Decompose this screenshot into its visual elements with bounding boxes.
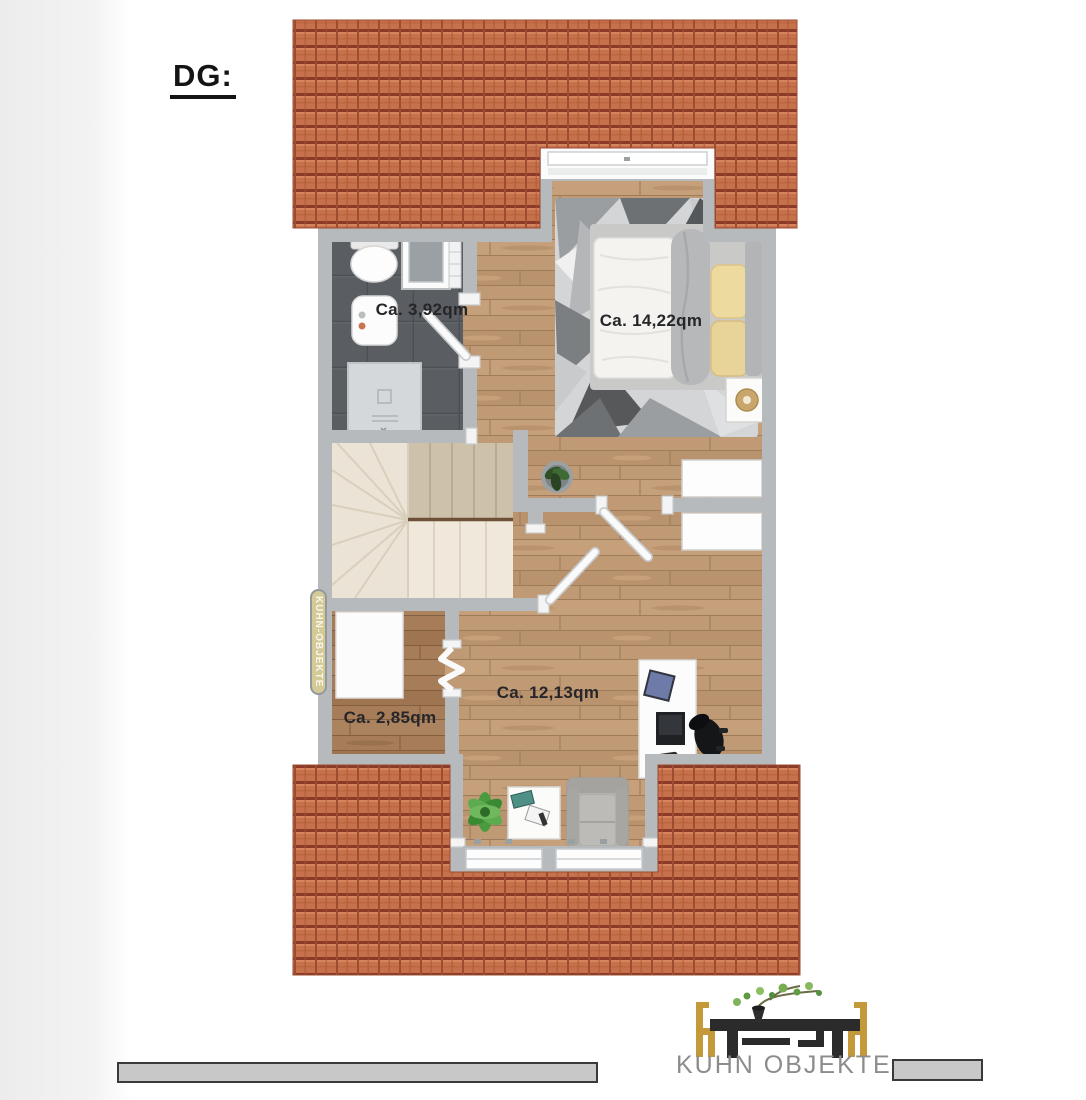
floorplan-drawing [0,0,1086,1100]
brand-bar-left [118,1063,597,1082]
brand-bar-right [893,1060,982,1080]
bathroom-shower [348,363,421,439]
nightstand [726,378,768,422]
bed-headboard [745,240,762,376]
armchair [567,778,628,848]
room-area-label-bedroom: Ca. 14,22qm [566,311,736,331]
brand-name: KUHN OBJEKTE [676,1051,892,1080]
bathroom-radiator [449,240,461,288]
room-area-label-bathroom: Ca. 3,92qm [337,300,507,320]
desk-picture [644,670,674,700]
room-area-label-living: Ca. 12,13qm [463,683,633,703]
bed-blanket-roll [671,229,710,385]
logo-plant [733,982,822,1022]
hall-plant [541,461,573,493]
floorplan-page: DG: [0,0,1086,1100]
storage-closet [336,612,403,698]
watermark-badge: KUHN-OBJEKTE [310,589,327,695]
bedroom-dormer-window [540,146,715,180]
coffee-table [508,787,560,839]
bed [590,224,762,390]
stairs [332,443,513,598]
bathroom-toilet [351,236,398,282]
room-area-label-storage: Ca. 2,85qm [305,708,475,728]
